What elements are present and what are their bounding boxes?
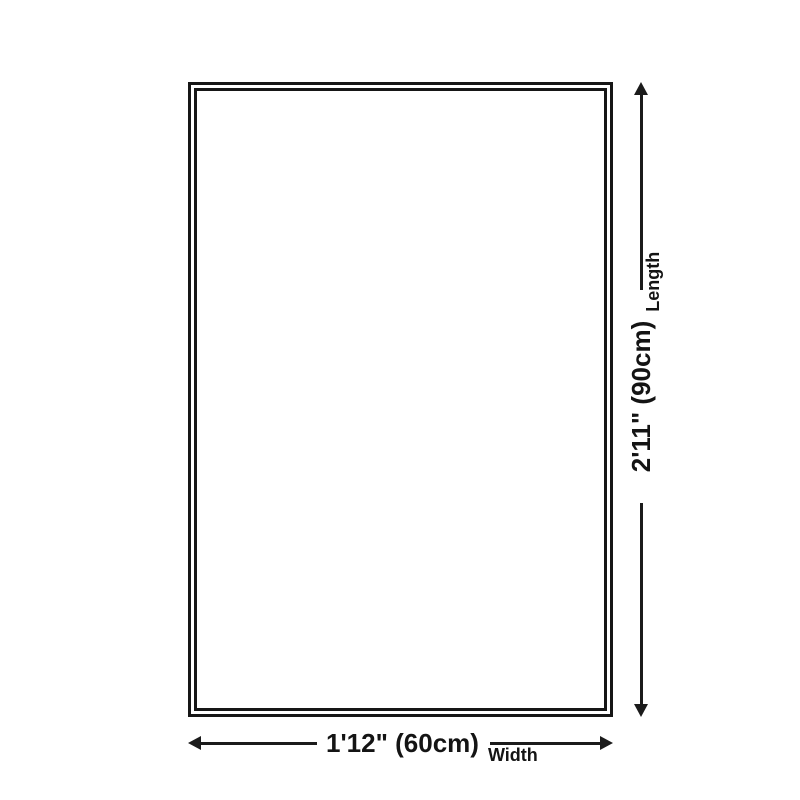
width-dimension: 1'12" (60cm) Width (188, 726, 613, 766)
rug-outline (188, 82, 613, 717)
dimension-diagram-page: { "diagram": { "type": "product-size-dia… (0, 0, 800, 800)
width-label: Width (488, 745, 538, 766)
length-line-bottom (640, 503, 643, 707)
width-line-left (199, 742, 317, 745)
length-dimension-label: 2'11" (90cm) Length (622, 246, 660, 478)
arrow-right-icon (600, 736, 613, 750)
rug-inner-border (194, 88, 607, 711)
width-line-right (490, 742, 600, 745)
length-dimension: 2'11" (90cm) Length (626, 82, 656, 717)
width-value: 1'12" (60cm) (326, 728, 479, 759)
arrow-down-icon (634, 704, 648, 717)
length-label: Length (643, 252, 664, 312)
length-value: 2'11" (90cm) (626, 321, 657, 473)
